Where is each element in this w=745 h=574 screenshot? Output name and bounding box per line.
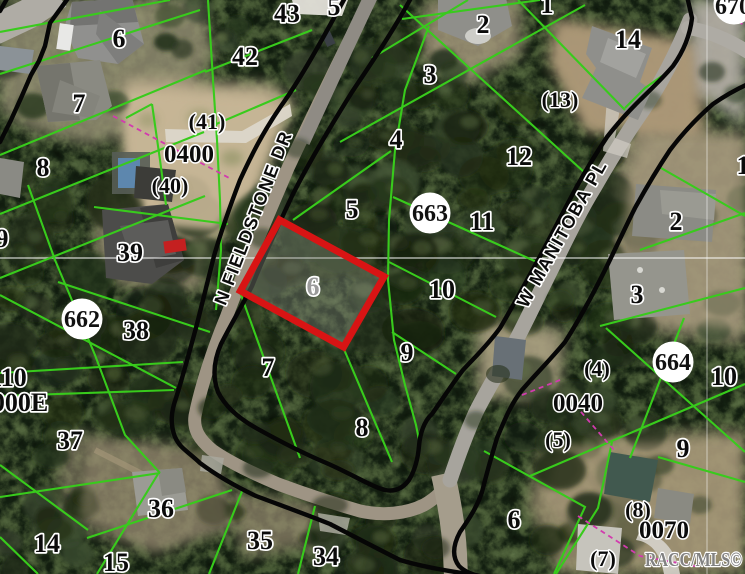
svg-text:6: 6	[113, 24, 126, 53]
svg-text:4: 4	[390, 125, 403, 154]
svg-text:(5): (5)	[545, 427, 571, 452]
svg-text:000E: 000E	[0, 388, 48, 417]
svg-text:0070: 0070	[639, 517, 689, 544]
svg-text:14: 14	[34, 529, 60, 558]
svg-text:38: 38	[123, 316, 149, 345]
svg-text:7: 7	[73, 89, 86, 118]
svg-text:9: 9	[401, 338, 414, 367]
svg-text:1: 1	[541, 0, 554, 19]
svg-text:664: 664	[655, 350, 691, 376]
svg-text:0400: 0400	[164, 141, 214, 168]
svg-text:662: 662	[64, 307, 100, 333]
svg-text:1: 1	[737, 151, 745, 180]
svg-text:663: 663	[412, 201, 448, 227]
svg-text:3: 3	[631, 280, 644, 309]
svg-text:36: 36	[148, 494, 174, 523]
svg-text:9: 9	[0, 224, 9, 253]
svg-text:12: 12	[506, 142, 532, 171]
svg-text:15: 15	[103, 548, 129, 574]
svg-text:35: 35	[247, 526, 273, 555]
svg-text:(7): (7)	[590, 546, 616, 571]
svg-text:43: 43	[274, 0, 300, 28]
svg-text:14: 14	[615, 25, 641, 54]
svg-text:7: 7	[262, 353, 275, 382]
svg-text:9: 9	[677, 434, 690, 463]
svg-text:42: 42	[232, 42, 258, 71]
svg-text:3: 3	[424, 60, 437, 89]
svg-text:37: 37	[57, 426, 83, 455]
svg-text:670: 670	[715, 0, 745, 20]
svg-text:0040: 0040	[553, 390, 603, 417]
svg-text:2: 2	[477, 10, 490, 39]
svg-text:11: 11	[470, 207, 495, 236]
svg-text:RACC/MLS©: RACC/MLS©	[645, 549, 742, 571]
svg-text:5: 5	[346, 195, 359, 224]
svg-text:10: 10	[711, 362, 737, 391]
svg-text:8: 8	[37, 153, 50, 182]
svg-text:2: 2	[670, 207, 683, 236]
svg-text:10: 10	[429, 275, 455, 304]
svg-text:39: 39	[117, 238, 143, 267]
svg-text:34: 34	[313, 542, 339, 571]
svg-text:(40): (40)	[152, 173, 189, 198]
svg-text:5: 5	[328, 0, 341, 21]
svg-text:(41): (41)	[189, 109, 226, 134]
svg-text:(4): (4)	[584, 356, 610, 381]
svg-text:6: 6	[508, 505, 521, 534]
svg-text:6: 6	[307, 272, 320, 301]
svg-text:(13): (13)	[542, 87, 579, 112]
svg-text:8: 8	[356, 413, 369, 442]
